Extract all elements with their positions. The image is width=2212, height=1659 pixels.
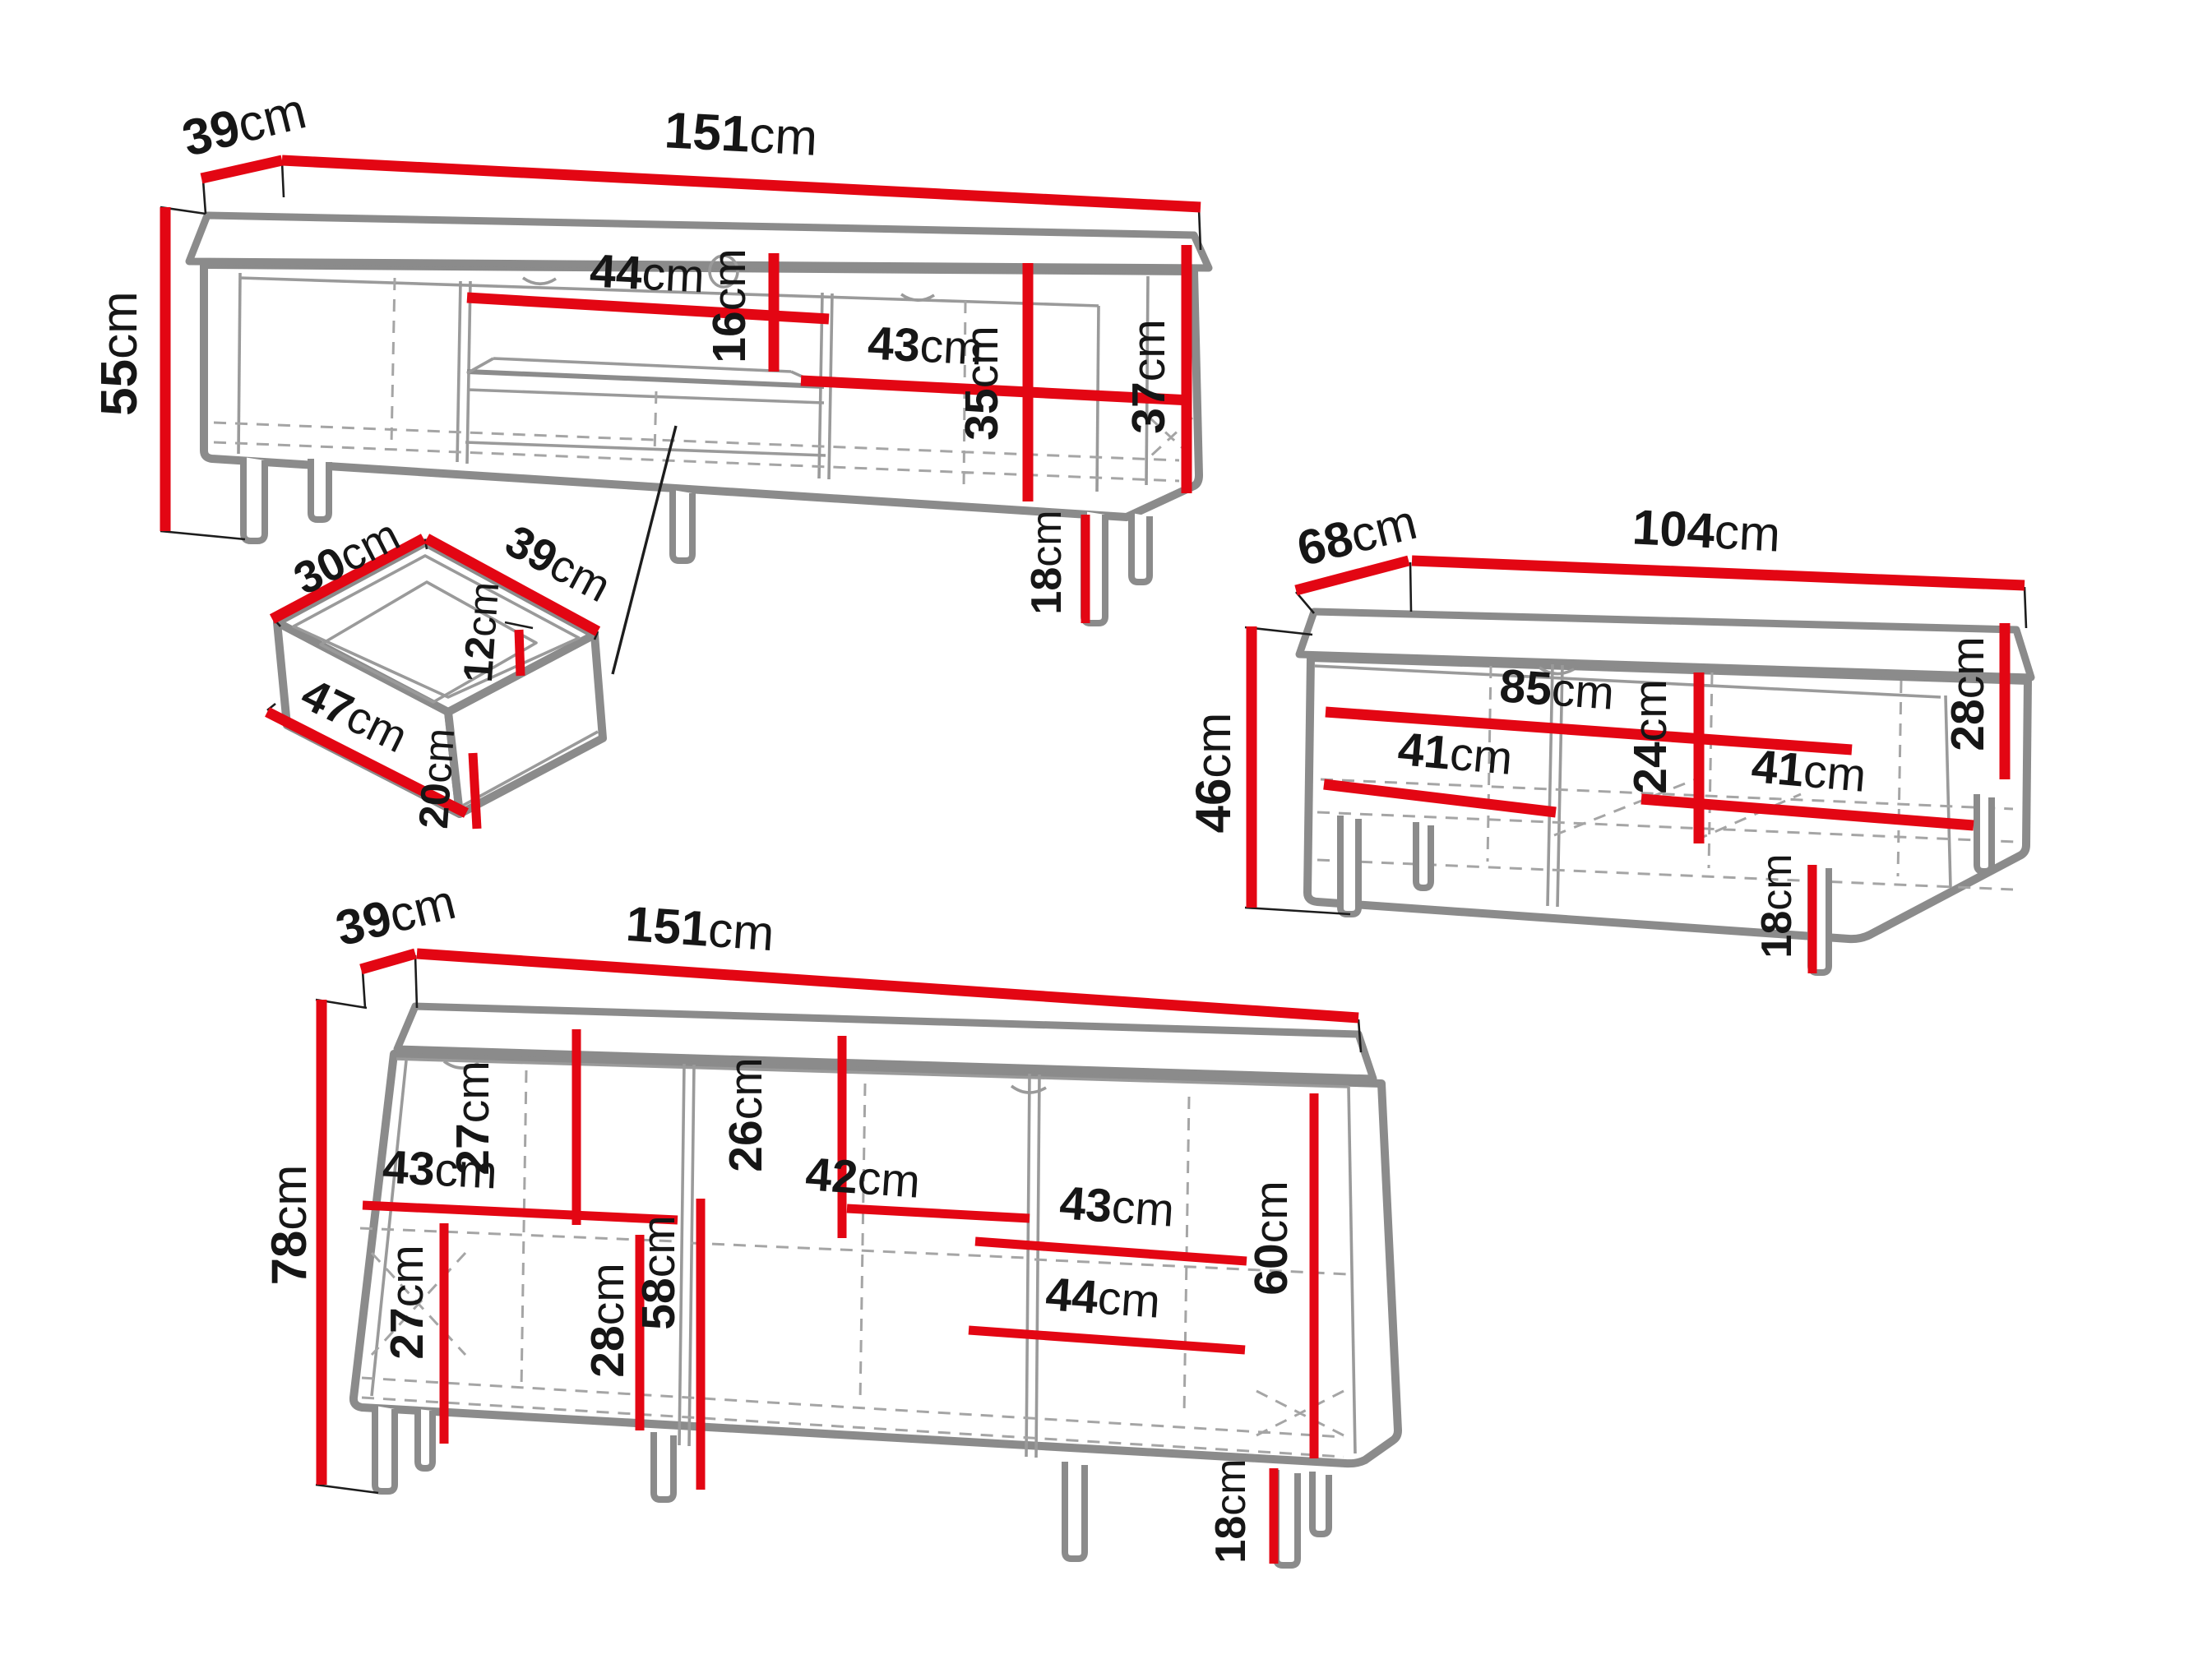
drawer-front-height-dimension-line [473,753,477,829]
dim-label-tv-shelf-width: 44cm [589,244,706,303]
dim-label-sb-lower-left-height: 27cm [381,1245,433,1359]
diagram-svg: 39cm151cm55cm44cm16cm43cm35cm37cm18cm30c… [0,0,2212,1659]
dim-label-tv-leg-height: 18cm [1023,510,1071,614]
ct-width-dimension-line [1412,561,2025,585]
dim-label-ct-interior-width: 85cm [1498,659,1617,720]
dim-label-tv-side-height: 37cm [1122,319,1175,433]
dim-label-sb-height: 78cm [261,1165,317,1286]
tv-stand-left-inner-edge [238,273,240,454]
dim-label-tv-width: 151cm [663,102,818,167]
furniture-dimension-diagram: 39cm151cm55cm44cm16cm43cm35cm37cm18cm30c… [0,0,2212,1659]
dim-label-ct-left-shelf: 41cm [1395,723,1514,785]
dim-label-ct-width: 104cm [1631,499,1781,561]
dim-label-ct-interior-height: 24cm [1624,679,1677,793]
dim-label-sb-right-width: 43cm [1058,1176,1177,1237]
dim-label-tv-height: 55cm [91,291,148,416]
tv-width-dimension-line [282,160,1201,207]
dim-label-sb-left-width: 43cm [382,1140,499,1199]
dim-label-ct-side-height: 28cm [1941,636,1994,751]
dim-label-drawer-front-height: 20cm [410,727,463,830]
dim-label-tv-interior-height: 35cm [956,326,1008,440]
furniture-leg [243,457,265,541]
dim-label-ct-right-shelf: 41cm [1749,740,1867,802]
dim-label-sb-upper-mid-height: 26cm [720,1057,772,1171]
tv-depth-dimension-line [201,160,282,178]
dim-label-ct-leg-height: 18cm [1753,853,1801,958]
furniture-leg [418,1409,433,1468]
dim-label-sb-depth: 39cm [331,874,461,957]
dim-label-ct-height: 46cm [1186,713,1241,834]
furniture-leg [1276,1470,1298,1565]
dim-label-sb-right-lower-width: 44cm [1044,1268,1163,1329]
furniture-leg [673,490,692,561]
furniture-leg [1416,822,1431,888]
dim-label-tv-depth: 39cm [177,82,312,168]
sb-depth-dimension-line [361,954,415,969]
dim-label-drawer-inner-height: 12cm [455,580,507,684]
furniture-leg [1131,513,1150,582]
dim-label-sb-width: 151cm [624,896,775,961]
furniture-leg [1312,1472,1329,1534]
furniture-leg [311,459,329,520]
dim-label-sb-leg-height: 18cm [1207,1458,1255,1563]
drawer-inner-height-dimension-line [519,630,521,676]
furniture-leg [375,1406,395,1491]
dim-label-sb-lower-mid-height: 28cm [581,1263,634,1377]
furniture-leg [1977,794,1992,871]
dim-label-sb-mid-width: 42cm [804,1148,923,1208]
furniture-leg [1065,1462,1085,1559]
furniture-leg [1340,816,1358,914]
dim-label-sb-lower-section-height: 58cm [632,1215,685,1329]
dim-label-sb-right-height: 60cm [1245,1181,1298,1295]
furniture-leg [654,1432,673,1500]
dim-label-tv-shelf-height: 16cm [703,248,756,363]
